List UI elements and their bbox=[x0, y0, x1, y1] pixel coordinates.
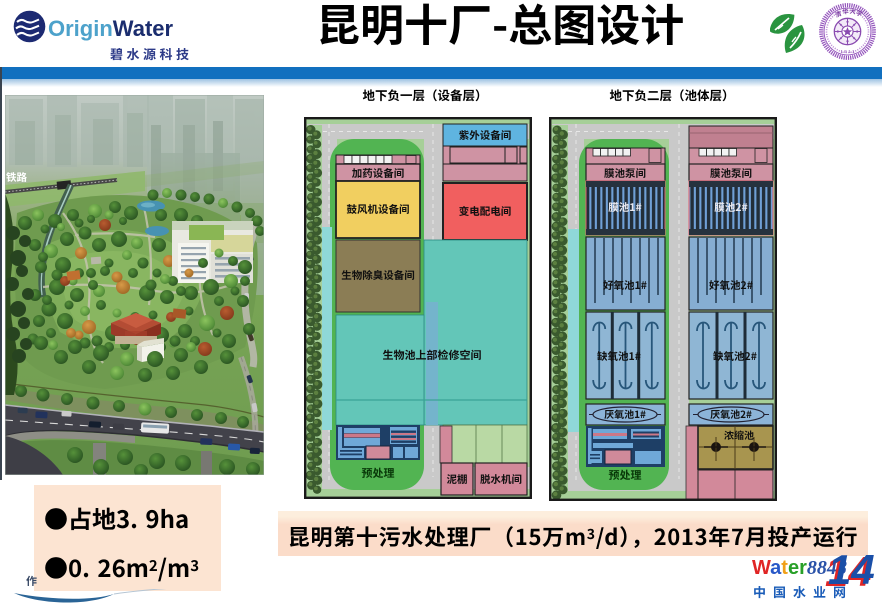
svg-text:厌氧池2#: 厌氧池2# bbox=[710, 406, 752, 421]
svg-text:膜池泵间: 膜池泵间 bbox=[710, 166, 752, 181]
svg-text:变电配电间: 变电配电间 bbox=[459, 204, 512, 219]
svg-text:铁路: 铁路 bbox=[6, 170, 27, 185]
svg-text:好氧池1#: 好氧池1# bbox=[603, 278, 647, 293]
svg-text:膜池1#: 膜池1# bbox=[608, 200, 641, 215]
svg-text:鼓风机设备间: 鼓风机设备间 bbox=[347, 202, 410, 217]
svg-text:浓缩池: 浓缩池 bbox=[724, 427, 754, 442]
svg-text:预处理: 预处理 bbox=[609, 467, 642, 483]
svg-text:膜池泵间: 膜池泵间 bbox=[604, 166, 646, 181]
svg-text:泥棚: 泥棚 bbox=[447, 472, 468, 487]
svg-text:缺氧池1#: 缺氧池1# bbox=[597, 349, 641, 364]
svg-text:生物除臭设备间: 生物除臭设备间 bbox=[341, 268, 415, 283]
svg-text:缺氧池2#: 缺氧池2# bbox=[713, 349, 757, 364]
svg-text:厌氧池1#: 厌氧池1# bbox=[604, 406, 646, 421]
svg-text:紫外设备间: 紫外设备间 bbox=[459, 128, 512, 143]
svg-text:预处理: 预处理 bbox=[362, 465, 395, 481]
svg-text:膜池2#: 膜池2# bbox=[714, 200, 747, 215]
svg-text:生物池上部检修空间: 生物池上部检修空间 bbox=[383, 347, 482, 363]
svg-text:加药设备间: 加药设备间 bbox=[352, 166, 405, 181]
svg-text:1 9 1 1: 1 9 1 1 bbox=[840, 49, 854, 54]
svg-text:华: 华 bbox=[842, 6, 849, 16]
svg-text:好氧池2#: 好氧池2# bbox=[709, 278, 753, 293]
svg-text:脱水机间: 脱水机间 bbox=[480, 472, 522, 487]
